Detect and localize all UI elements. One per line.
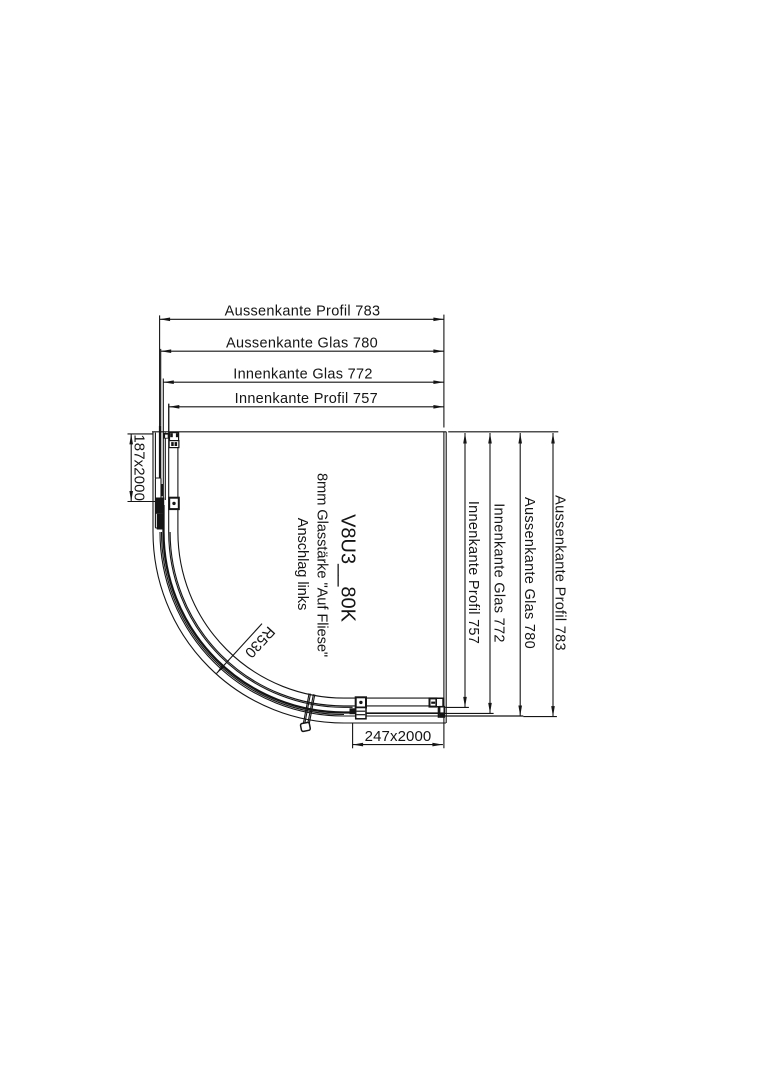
svg-text:V8U3__80K: V8U3__80K <box>337 514 359 623</box>
svg-text:Aussenkante Glas 780: Aussenkante Glas 780 <box>226 336 378 352</box>
svg-text:Innenkante Profil 757: Innenkante Profil 757 <box>465 501 481 644</box>
svg-text:Aussenkante Glas 780: Aussenkante Glas 780 <box>521 497 537 649</box>
svg-text:Innenkante Glas 772: Innenkante Glas 772 <box>233 367 373 383</box>
svg-text:8mm Glasstärke "Auf Fliese": 8mm Glasstärke "Auf Fliese" <box>314 473 330 657</box>
svg-text:187x2000: 187x2000 <box>131 434 148 501</box>
svg-text:Innenkante Glas 772: Innenkante Glas 772 <box>490 503 506 643</box>
svg-text:247x2000: 247x2000 <box>365 728 432 745</box>
svg-text:Innenkante Profil 757: Innenkante Profil 757 <box>235 391 378 407</box>
svg-text:Anschlag links: Anschlag links <box>294 518 310 610</box>
svg-text:Aussenkante Profil 783: Aussenkante Profil 783 <box>551 495 567 651</box>
svg-text:Aussenkante Profil 783: Aussenkante Profil 783 <box>225 304 381 320</box>
